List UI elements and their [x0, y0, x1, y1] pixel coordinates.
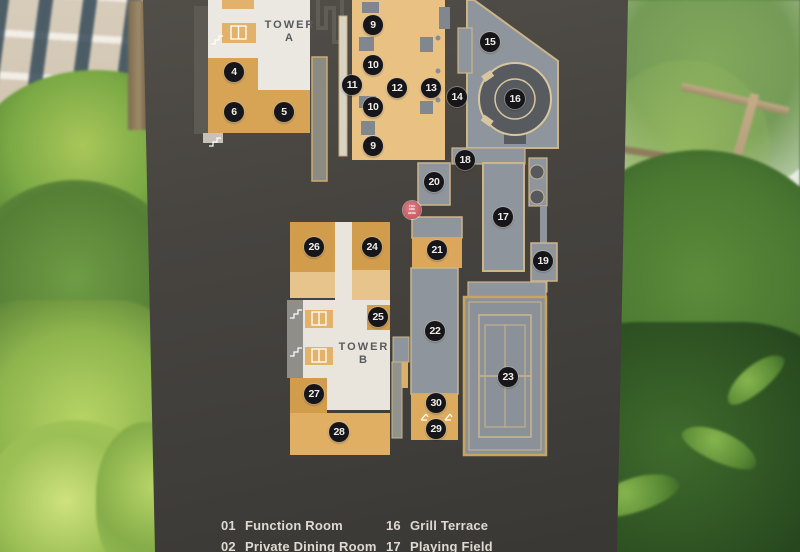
- legend-column-1: 01 Function Room 02 Private Dining Room: [221, 515, 377, 552]
- map-marker-10: 10: [363, 55, 383, 75]
- map-marker-6: 6: [224, 102, 244, 122]
- map-marker-22: 22: [425, 321, 445, 341]
- photo-of-site-map-sign: { "sign": { "towers": { "a": { "line1": …: [0, 0, 800, 552]
- map-marker-18: 18: [455, 150, 475, 170]
- map-marker-4: 4: [224, 62, 244, 82]
- map-marker-12: 12: [387, 78, 407, 98]
- map-marker-20: 20: [424, 172, 444, 192]
- map-marker-29: 29: [426, 419, 446, 439]
- map-marker-23: 23: [498, 367, 518, 387]
- map-marker-27: 27: [304, 384, 324, 404]
- map-marker-11: 11: [342, 75, 362, 95]
- legend-item: 02 Private Dining Room: [221, 536, 377, 552]
- legend-column-2: 16 Grill Terrace 17 Playing Field: [386, 515, 493, 552]
- map-marker-28: 28: [329, 422, 349, 442]
- you-are-here-label: YOU ARE HERE: [406, 205, 419, 215]
- map-marker-24: 24: [362, 237, 382, 257]
- map-marker-9: 9: [363, 136, 383, 156]
- map-marker-30: 30: [426, 393, 446, 413]
- map-marker-19: 19: [533, 251, 553, 271]
- tower-a-label: TOWER A: [264, 19, 316, 45]
- map-marker-15: 15: [480, 32, 500, 52]
- map-marker-25: 25: [368, 307, 388, 327]
- you-are-here-marker: YOU ARE HERE: [403, 201, 421, 219]
- map-marker-17: 17: [493, 207, 513, 227]
- map-marker-16: 16: [505, 89, 525, 109]
- map-marker-21: 21: [427, 240, 447, 260]
- map-marker-26: 26: [304, 237, 324, 257]
- legend-item: 01 Function Room: [221, 515, 377, 536]
- legend-item: 17 Playing Field: [386, 536, 493, 552]
- tower-b-label: TOWER B: [338, 341, 390, 367]
- legend-item: 16 Grill Terrace: [386, 515, 493, 536]
- map-marker-10: 10: [363, 97, 383, 117]
- map-marker-9: 9: [363, 15, 383, 35]
- map-marker-14: 14: [447, 87, 467, 107]
- map-marker-5: 5: [274, 102, 294, 122]
- map-marker-13: 13: [421, 78, 441, 98]
